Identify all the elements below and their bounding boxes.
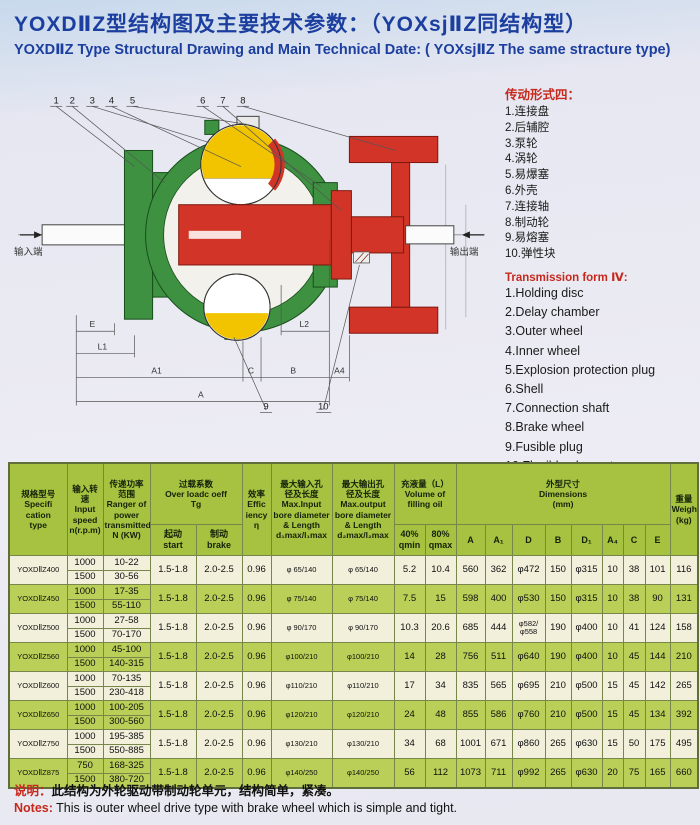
cell-C: 38 — [623, 585, 645, 614]
power-cell: 168-325 — [103, 759, 150, 774]
cell-out_bore: φ110/210 — [332, 672, 394, 701]
cell-A: 835 — [456, 672, 485, 701]
model-cell: YOXDⅡZ500 — [9, 614, 67, 643]
col-fill-volume: 充液量（L） Volume of filling oil — [394, 463, 456, 525]
cell-q40: 5.2 — [394, 556, 425, 585]
legend-item: 3.泵轮 — [505, 137, 697, 153]
input-shaft: 输入端 — [14, 225, 124, 258]
speed-cell: 1000 — [67, 556, 103, 571]
legend-item: 2.Delay chamber — [505, 303, 697, 322]
cell-D1: φ630 — [571, 730, 602, 759]
speed-cell: 1000 — [67, 614, 103, 629]
speed-cell: 1500 — [67, 715, 103, 730]
note-en: Notes: This is outer wheel drive type wi… — [14, 800, 690, 817]
cell-in_bore: φ 75/140 — [271, 585, 332, 614]
callout-5: 5 — [130, 95, 135, 106]
callout-10: 10 — [318, 402, 329, 413]
callout-6: 6 — [200, 95, 205, 106]
dim-a-label: A — [198, 390, 204, 400]
cell-start: 1.5-1.8 — [150, 672, 196, 701]
cell-q80: 68 — [425, 730, 456, 759]
table-row: YOXDⅡZ500100027-581.5-1.82.0-2.50.96φ 90… — [9, 614, 698, 629]
legend-item: 10.弹性块 — [505, 247, 697, 263]
speed-cell: 1500 — [67, 628, 103, 643]
dim-e-label: E — [89, 319, 95, 329]
cell-D1: φ315 — [571, 585, 602, 614]
cell-wt: 116 — [670, 556, 698, 585]
cell-wt: 158 — [670, 614, 698, 643]
model-cell: YOXDⅡZ600 — [9, 672, 67, 701]
col-type: 规格型号 Specifi cation type — [9, 463, 67, 556]
spec-table-head: 规格型号 Specifi cation type 输入转速 Input spee… — [9, 463, 698, 556]
parts-legend: 传动形式四： 1.连接盘2.后辅腔3.泵轮4.涡轮5.易爆塞6.外壳7.连接轴8… — [505, 84, 697, 476]
input-end-label: 输入端 — [14, 246, 43, 258]
cell-A4: 15 — [602, 701, 623, 730]
table-body: YOXDⅡZ400100010-221.5-1.82.0-2.50.96φ 65… — [9, 556, 698, 789]
cell-D: φ530 — [512, 585, 545, 614]
table-row: YOXDⅡZ450100017-351.5-1.82.0-2.50.96φ 75… — [9, 585, 698, 600]
legend-zh: 传动形式四： 1.连接盘2.后辅腔3.泵轮4.涡轮5.易爆塞6.外壳7.连接轴8… — [505, 84, 697, 263]
cell-start: 1.5-1.8 — [150, 730, 196, 759]
power-cell: 27-58 — [103, 614, 150, 629]
power-cell: 140-315 — [103, 657, 150, 672]
cell-E: 101 — [645, 556, 670, 585]
legend-item: 8.Brake wheel — [505, 418, 697, 437]
cell-q40: 24 — [394, 701, 425, 730]
cell-E: 134 — [645, 701, 670, 730]
cell-q40: 14 — [394, 643, 425, 672]
note-zh-label: 说明： — [14, 784, 52, 798]
legend-item: 3.Outer wheel — [505, 322, 697, 341]
spec-table: 规格型号 Specifi cation type 输入转速 Input spee… — [8, 462, 699, 789]
cell-E: 90 — [645, 585, 670, 614]
cell-B: 190 — [545, 643, 571, 672]
cell-C: 41 — [623, 614, 645, 643]
col-dim-a4: A₄ — [602, 525, 623, 556]
lower-chamber — [204, 274, 270, 340]
legend-title-zh: 传动形式四： — [505, 84, 697, 103]
cell-A4: 15 — [602, 672, 623, 701]
cell-E: 144 — [645, 643, 670, 672]
cell-eff: 0.96 — [242, 614, 271, 643]
cell-q80: 20.6 — [425, 614, 456, 643]
cell-D: φ640 — [512, 643, 545, 672]
footnotes: 说明：此结构为外轮驱动带制动轮单元，结构简单，紧凑。 Notes: This i… — [14, 783, 690, 817]
speed-cell: 1500 — [67, 744, 103, 759]
table-row: YOXDⅡZ7501000195-3851.5-1.82.0-2.50.96φ1… — [9, 730, 698, 745]
power-cell: 230-418 — [103, 686, 150, 701]
cell-A4: 15 — [602, 730, 623, 759]
legend-title-en: Transmission form Ⅳ: — [505, 270, 697, 284]
col-dim-a: A — [456, 525, 485, 556]
cell-D1: φ400 — [571, 643, 602, 672]
brake-wheel-rim-bottom — [349, 307, 437, 333]
cell-A: 855 — [456, 701, 485, 730]
note-en-text: This is outer wheel drive type with brak… — [56, 801, 457, 815]
cell-A: 560 — [456, 556, 485, 585]
cell-D: φ860 — [512, 730, 545, 759]
speed-cell: 1000 — [67, 585, 103, 600]
cell-wt: 392 — [670, 701, 698, 730]
cell-brake: 2.0-2.5 — [196, 585, 242, 614]
page-header: YOXDⅡZ型结构图及主要技术参数：（YOXsjⅡZ同结构型） YOXDⅡZ T… — [14, 8, 690, 58]
col-dim-a1: A₁ — [485, 525, 512, 556]
cell-A: 756 — [456, 643, 485, 672]
cell-C: 38 — [623, 556, 645, 585]
cell-D1: φ315 — [571, 556, 602, 585]
cell-wt: 265 — [670, 672, 698, 701]
col-efficiency: 效率 Effic iency η — [242, 463, 271, 556]
legend-item: 4.Inner wheel — [505, 342, 697, 361]
cell-A1: 511 — [485, 643, 512, 672]
note-zh-text: 此结构为外轮驱动带制动轮单元，结构简单，紧凑。 — [52, 784, 340, 798]
col-power: 传递功率 范围 Ranger of power transmitted N (K… — [103, 463, 150, 556]
col-dimensions: 外型尺寸 Dimensions (mm) — [456, 463, 670, 525]
dim-b-label: B — [290, 365, 296, 375]
cell-wt: 495 — [670, 730, 698, 759]
cell-A: 685 — [456, 614, 485, 643]
cell-brake: 2.0-2.5 — [196, 556, 242, 585]
legend-item: 6.外壳 — [505, 184, 697, 200]
power-cell: 195-385 — [103, 730, 150, 745]
cell-in_bore: φ100/210 — [271, 643, 332, 672]
power-cell: 70-135 — [103, 672, 150, 687]
model-cell: YOXDⅡZ560 — [9, 643, 67, 672]
cell-in_bore: φ 65/140 — [271, 556, 332, 585]
model-cell: YOXDⅡZ650 — [9, 701, 67, 730]
cell-A4: 10 — [602, 643, 623, 672]
cell-brake: 2.0-2.5 — [196, 614, 242, 643]
power-cell: 70-170 — [103, 628, 150, 643]
cell-C: 45 — [623, 672, 645, 701]
cell-brake: 2.0-2.5 — [196, 672, 242, 701]
cell-D: φ760 — [512, 701, 545, 730]
col-q80: 80% qmax — [425, 525, 456, 556]
cell-out_bore: φ 65/140 — [332, 556, 394, 585]
model-cell: YOXDⅡZ400 — [9, 556, 67, 585]
callout-4: 4 — [109, 95, 115, 106]
legend-item: 2.后辅腔 — [505, 121, 697, 137]
connection-shaft — [331, 191, 351, 279]
cell-C: 45 — [623, 701, 645, 730]
cell-eff: 0.96 — [242, 701, 271, 730]
dim-l1-label: L1 — [98, 341, 108, 351]
cell-q80: 15 — [425, 585, 456, 614]
cell-eff: 0.96 — [242, 556, 271, 585]
cell-out_bore: φ 75/140 — [332, 585, 394, 614]
col-brake: 制动 brake — [196, 525, 242, 556]
legend-item: 7.连接轴 — [505, 200, 697, 216]
speed-cell: 1000 — [67, 643, 103, 658]
cell-q40: 17 — [394, 672, 425, 701]
callout-9: 9 — [263, 402, 268, 413]
cell-B: 190 — [545, 614, 571, 643]
legend-item: 1.连接盘 — [505, 105, 697, 121]
brake-wheel-rim-top — [349, 136, 437, 162]
cell-eff: 0.96 — [242, 672, 271, 701]
cell-start: 1.5-1.8 — [150, 585, 196, 614]
cell-out_bore: φ 90/170 — [332, 614, 394, 643]
cell-A4: 10 — [602, 585, 623, 614]
cell-E: 175 — [645, 730, 670, 759]
cell-in_bore: φ110/210 — [271, 672, 332, 701]
cell-A: 598 — [456, 585, 485, 614]
cell-B: 210 — [545, 672, 571, 701]
power-cell: 550-885 — [103, 744, 150, 759]
col-dim-d1: D₁ — [571, 525, 602, 556]
power-cell: 100-205 — [103, 701, 150, 716]
cell-wt: 131 — [670, 585, 698, 614]
coupling-cross-section: 输入端 — [12, 84, 494, 464]
cell-D1: φ400 — [571, 614, 602, 643]
cell-D1: φ500 — [571, 701, 602, 730]
cell-eff: 0.96 — [242, 643, 271, 672]
table-row: YOXDⅡZ6501000100-2051.5-1.82.0-2.50.96φ1… — [9, 701, 698, 716]
legend-zh-list: 1.连接盘2.后辅腔3.泵轮4.涡轮5.易爆塞6.外壳7.连接轴8.制动轮9.易… — [505, 105, 697, 263]
speed-cell: 750 — [67, 759, 103, 774]
cell-E: 124 — [645, 614, 670, 643]
page-title-en: YOXDⅡZ Type Structural Drawing and Main … — [14, 42, 690, 58]
legend-en: Transmission form Ⅳ: 1.Holding disc2.Del… — [505, 270, 697, 476]
power-cell: 30-56 — [103, 570, 150, 585]
cell-C: 45 — [623, 643, 645, 672]
cell-B: 265 — [545, 730, 571, 759]
speed-cell: 1000 — [67, 701, 103, 716]
cell-q80: 48 — [425, 701, 456, 730]
cell-B: 150 — [545, 585, 571, 614]
cell-start: 1.5-1.8 — [150, 556, 196, 585]
power-cell: 17-35 — [103, 585, 150, 600]
col-dim-b: B — [545, 525, 571, 556]
cell-D: φ582/φ558 — [512, 614, 545, 643]
cell-A1: 565 — [485, 672, 512, 701]
output-end-label: 输出端 — [450, 246, 479, 258]
cell-in_bore: φ130/210 — [271, 730, 332, 759]
cell-D: φ695 — [512, 672, 545, 701]
table-row: YOXDⅡZ600100070-1351.5-1.82.0-2.50.96φ11… — [9, 672, 698, 687]
legend-item: 4.涡轮 — [505, 152, 697, 168]
cell-out_bore: φ120/210 — [332, 701, 394, 730]
dim-c-label: C — [248, 365, 254, 375]
col-start: 起动 start — [150, 525, 196, 556]
speed-cell: 1500 — [67, 599, 103, 614]
cell-A1: 671 — [485, 730, 512, 759]
page-title-zh: YOXDⅡZ型结构图及主要技术参数：（YOXsjⅡZ同结构型） — [14, 8, 690, 38]
cell-start: 1.5-1.8 — [150, 643, 196, 672]
col-overload: 过载系数 Over loadc oeff Tg — [150, 463, 242, 525]
dim-a4-label: A4 — [334, 365, 345, 375]
table-row: YOXDⅡZ400100010-221.5-1.82.0-2.50.96φ 65… — [9, 556, 698, 571]
cell-D1: φ500 — [571, 672, 602, 701]
col-weight: 重量 Weight (kg) — [670, 463, 698, 556]
speed-cell: 1500 — [67, 686, 103, 701]
legend-item: 9.Fusible plug — [505, 438, 697, 457]
legend-item: 7.Connection shaft — [505, 399, 697, 418]
callout-2: 2 — [70, 95, 75, 106]
cell-B: 150 — [545, 556, 571, 585]
cell-q80: 28 — [425, 643, 456, 672]
cell-q40: 34 — [394, 730, 425, 759]
power-cell: 10-22 — [103, 556, 150, 571]
cell-q80: 10.4 — [425, 556, 456, 585]
cell-in_bore: φ 90/170 — [271, 614, 332, 643]
cell-out_bore: φ130/210 — [332, 730, 394, 759]
brake-wheel-hub — [351, 217, 403, 253]
cell-A4: 10 — [602, 614, 623, 643]
col-speed: 输入转速 Input speed n(r.p.m) — [67, 463, 103, 556]
col-q40: 40% qmin — [394, 525, 425, 556]
cell-wt: 210 — [670, 643, 698, 672]
cell-A: 1001 — [456, 730, 485, 759]
cell-start: 1.5-1.8 — [150, 614, 196, 643]
table-row: YOXDⅡZ875750168-3251.5-1.82.0-2.50.96φ14… — [9, 759, 698, 774]
speed-cell: 1000 — [67, 672, 103, 687]
legend-item: 9.易熔塞 — [505, 231, 697, 247]
cell-eff: 0.96 — [242, 730, 271, 759]
cell-C: 50 — [623, 730, 645, 759]
cell-q40: 7.5 — [394, 585, 425, 614]
model-cell: YOXDⅡZ450 — [9, 585, 67, 614]
col-dim-c: C — [623, 525, 645, 556]
callout-8: 8 — [240, 95, 245, 106]
note-zh: 说明：此结构为外轮驱动带制动轮单元，结构简单，紧凑。 — [14, 783, 690, 800]
legend-en-list: 1.Holding disc2.Delay chamber3.Outer whe… — [505, 284, 697, 476]
cell-brake: 2.0-2.5 — [196, 730, 242, 759]
dim-l2-label: L2 — [299, 319, 309, 329]
note-en-label: Notes: — [14, 801, 53, 815]
output-shaft: 输出端 — [406, 226, 484, 258]
cell-brake: 2.0-2.5 — [196, 643, 242, 672]
cell-E: 142 — [645, 672, 670, 701]
legend-item: 5.易爆塞 — [505, 168, 697, 184]
catalog-page: YOXDⅡZ型结构图及主要技术参数：（YOXsjⅡZ同结构型） YOXDⅡZ T… — [0, 0, 700, 825]
cell-B: 210 — [545, 701, 571, 730]
speed-cell: 1500 — [67, 657, 103, 672]
cell-A1: 444 — [485, 614, 512, 643]
speed-cell: 1500 — [67, 570, 103, 585]
legend-item: 5.Explosion protection plug — [505, 361, 697, 380]
power-cell: 55-110 — [103, 599, 150, 614]
cell-start: 1.5-1.8 — [150, 701, 196, 730]
legend-item: 8.制动轮 — [505, 216, 697, 232]
col-dim-d: D — [512, 525, 545, 556]
cell-A1: 362 — [485, 556, 512, 585]
power-cell: 45-100 — [103, 643, 150, 658]
col-input-bore: 最大输入孔 径及长度 Max.Input bore diameter & Len… — [271, 463, 332, 556]
cell-A1: 400 — [485, 585, 512, 614]
legend-item: 1.Holding disc — [505, 284, 697, 303]
cell-A4: 10 — [602, 556, 623, 585]
legend-item: 6.Shell — [505, 380, 697, 399]
callout-1: 1 — [54, 95, 59, 106]
dim-a1-label: A1 — [151, 365, 162, 375]
speed-cell: 1000 — [67, 730, 103, 745]
cell-in_bore: φ120/210 — [271, 701, 332, 730]
table-row: YOXDⅡZ560100045-1001.5-1.82.0-2.50.96φ10… — [9, 643, 698, 658]
cell-A1: 586 — [485, 701, 512, 730]
cell-q40: 10.3 — [394, 614, 425, 643]
power-cell: 300-560 — [103, 715, 150, 730]
cell-eff: 0.96 — [242, 585, 271, 614]
col-dim-e: E — [645, 525, 670, 556]
col-output-bore: 最大输出孔 径及长度 Max.output bore diameter & Le… — [332, 463, 394, 556]
model-cell: YOXDⅡZ750 — [9, 730, 67, 759]
cell-D: φ472 — [512, 556, 545, 585]
input-arrow-icon — [34, 231, 42, 238]
callout-3: 3 — [90, 95, 95, 106]
callout-7: 7 — [220, 95, 225, 106]
structural-drawing: 输入端 — [12, 84, 494, 464]
cell-out_bore: φ100/210 — [332, 643, 394, 672]
cell-q80: 34 — [425, 672, 456, 701]
cell-brake: 2.0-2.5 — [196, 701, 242, 730]
